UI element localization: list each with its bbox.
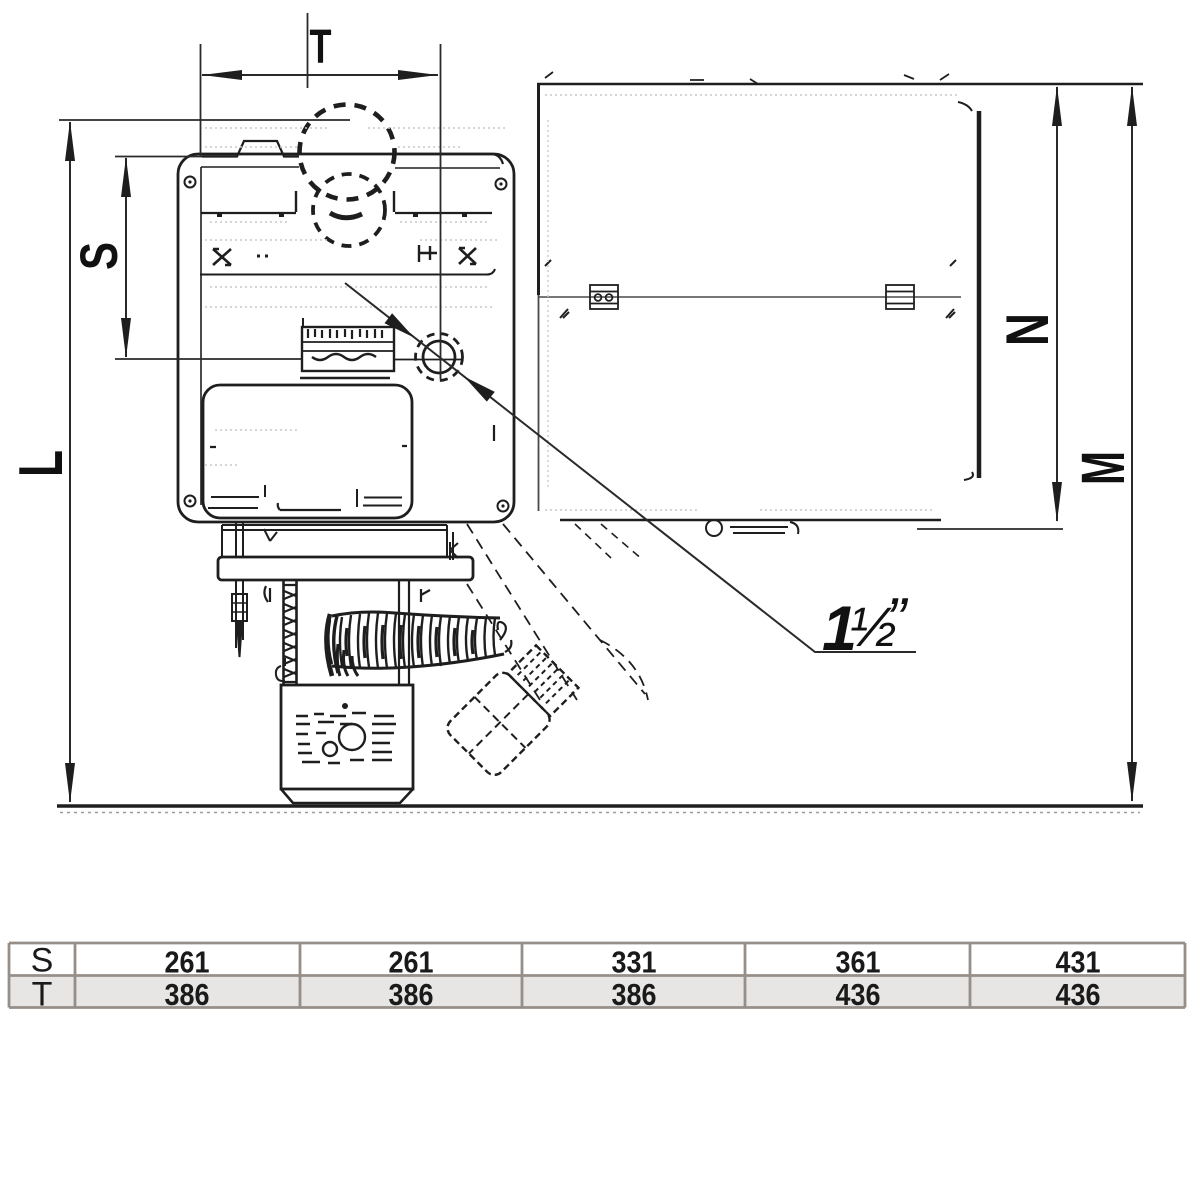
svg-text:L: L [7, 450, 76, 477]
svg-text:361: 361 [836, 945, 881, 980]
svg-text:N: N [994, 313, 1061, 346]
svg-text:386: 386 [612, 977, 657, 1012]
svg-text:T: T [32, 976, 53, 1014]
svg-text:”: ” [886, 586, 909, 653]
svg-text:431: 431 [1056, 945, 1101, 980]
svg-text:436: 436 [1056, 977, 1101, 1012]
svg-text:S: S [31, 942, 54, 980]
svg-text:261: 261 [165, 945, 210, 980]
svg-text:M: M [1069, 451, 1137, 485]
svg-text:T: T [310, 21, 332, 74]
svg-text:386: 386 [165, 977, 210, 1012]
svg-text:S: S [70, 242, 129, 270]
svg-text:261: 261 [389, 945, 434, 980]
svg-text:386: 386 [389, 977, 434, 1012]
svg-text:436: 436 [836, 977, 881, 1012]
svg-text:331: 331 [612, 945, 657, 980]
